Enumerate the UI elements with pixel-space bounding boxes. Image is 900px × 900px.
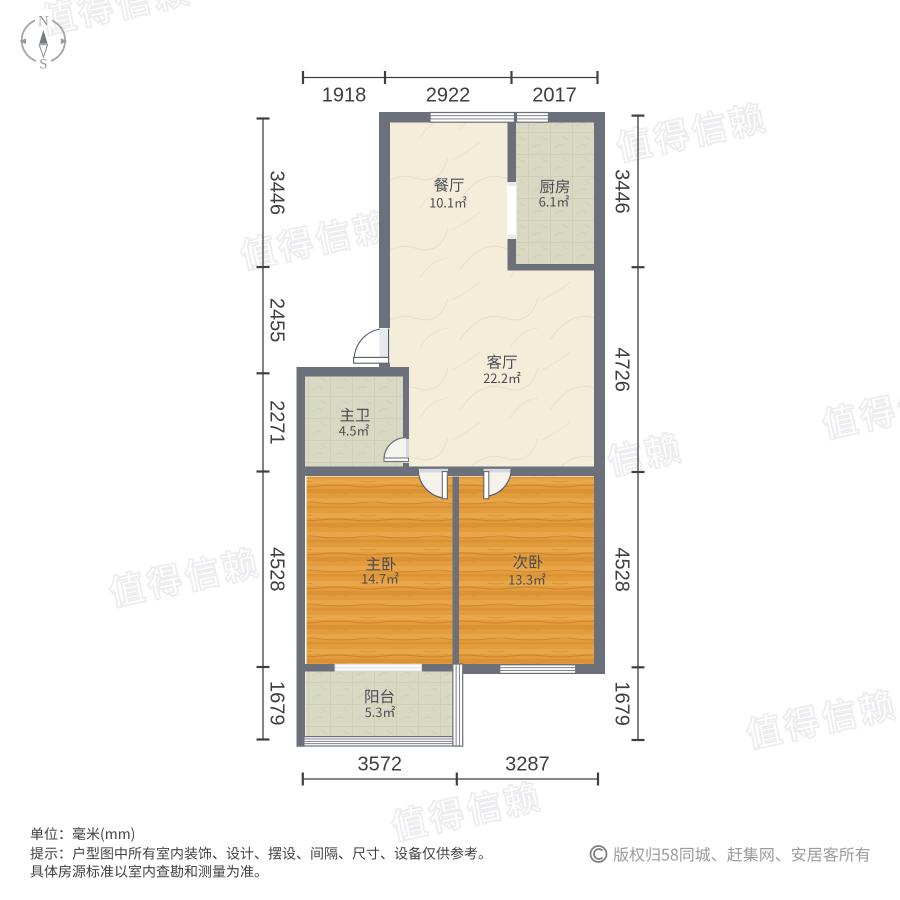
svg-text:1918: 1918: [322, 85, 367, 107]
svg-text:4528: 4528: [611, 547, 633, 592]
svg-text:1679: 1679: [611, 681, 633, 726]
svg-text:2455: 2455: [266, 298, 288, 343]
svg-text:2017: 2017: [532, 85, 577, 107]
svg-text:3572: 3572: [358, 754, 403, 776]
svg-text:3446: 3446: [611, 169, 633, 214]
svg-text:2922: 2922: [426, 85, 471, 107]
svg-text:3287: 3287: [505, 754, 550, 776]
svg-text:3446: 3446: [266, 171, 288, 216]
svg-text:N: N: [38, 14, 49, 30]
svg-text:S: S: [39, 57, 47, 73]
svg-text:4726: 4726: [611, 347, 633, 392]
svg-text:1679: 1679: [266, 681, 288, 726]
svg-text:2271: 2271: [266, 400, 288, 445]
svg-text:4528: 4528: [266, 547, 288, 592]
